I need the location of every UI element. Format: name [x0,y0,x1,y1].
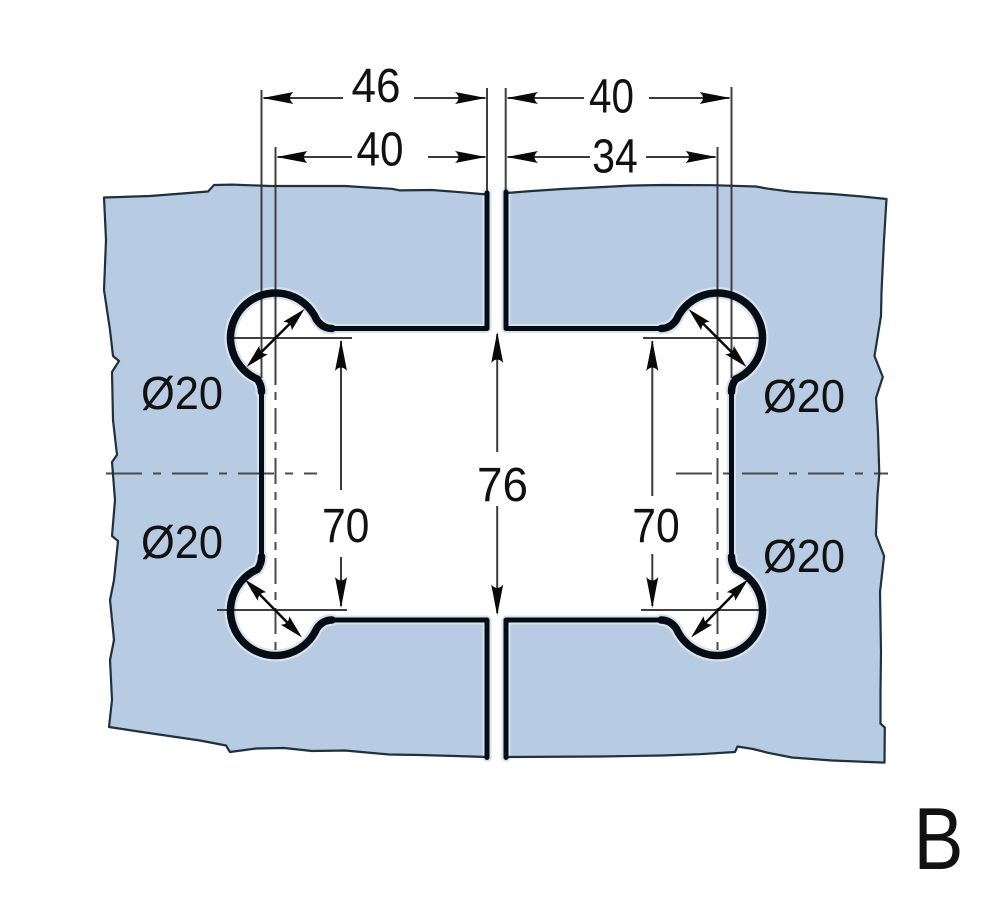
svg-text:Ø20: Ø20 [763,530,845,582]
svg-text:Ø20: Ø20 [141,516,223,568]
svg-text:40: 40 [589,70,634,124]
svg-text:70: 70 [632,499,680,553]
svg-text:70: 70 [322,499,370,553]
svg-text:Ø20: Ø20 [141,367,223,419]
svg-text:34: 34 [592,130,638,184]
svg-text:76: 76 [477,458,528,512]
svg-text:B: B [914,789,964,888]
svg-text:40: 40 [357,123,404,177]
svg-text:46: 46 [352,59,401,113]
svg-text:Ø20: Ø20 [763,370,845,422]
